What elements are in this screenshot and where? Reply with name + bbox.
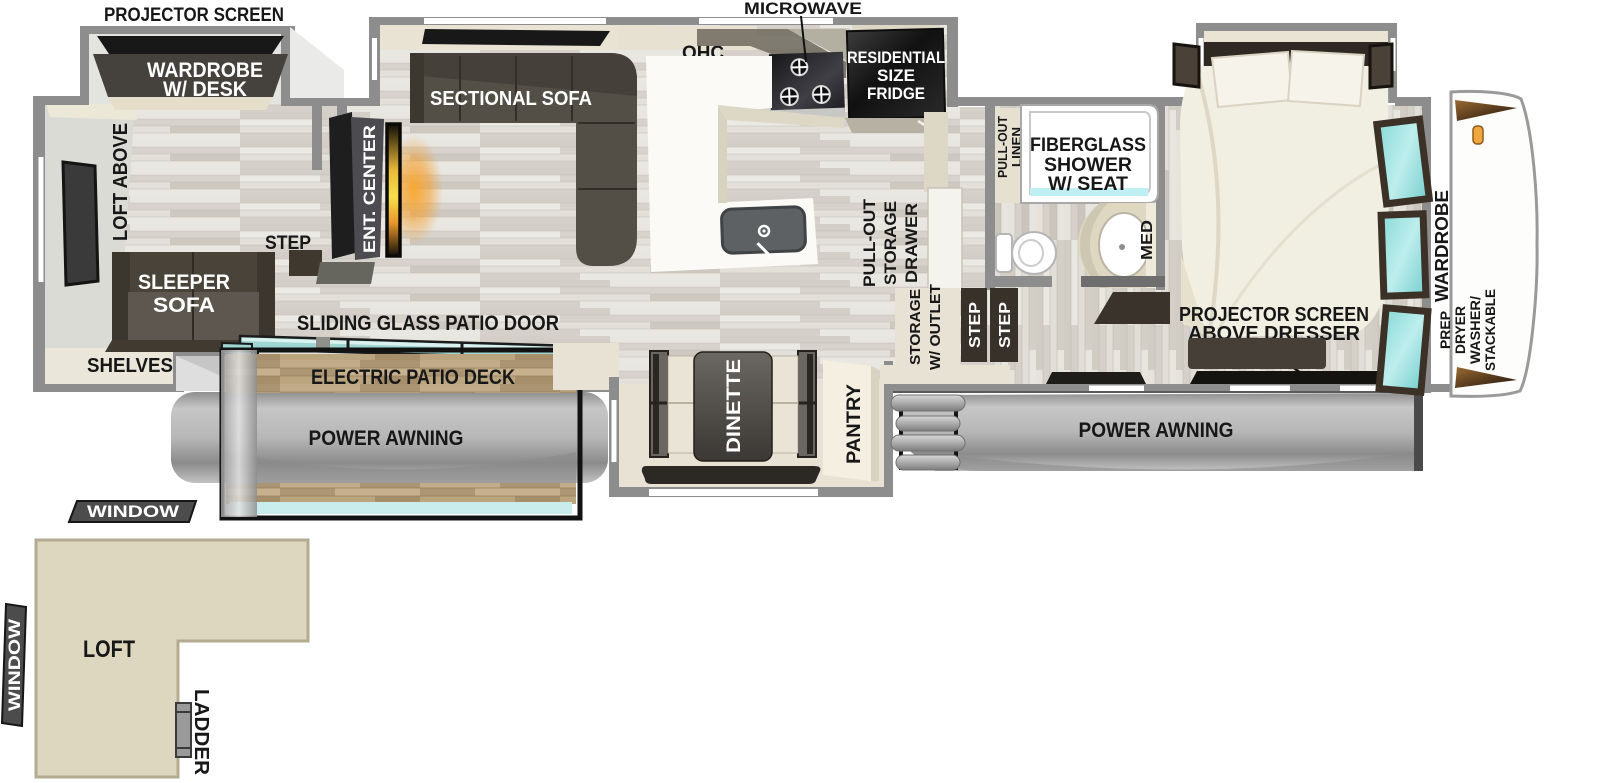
svg-text:ENT. CENTER: ENT. CENTER [360, 125, 379, 253]
svg-text:POWER AWNING: POWER AWNING [309, 427, 464, 450]
svg-text:SECTIONAL SOFA: SECTIONAL SOFA [430, 88, 592, 110]
svg-text:LADDER: LADDER [190, 689, 212, 776]
svg-text:SOFA: SOFA [153, 294, 215, 317]
svg-text:PULL-OUT: PULL-OUT [995, 116, 1010, 178]
svg-text:STORAGE: STORAGE [907, 289, 924, 365]
svg-text:FIBERGLASS: FIBERGLASS [1030, 135, 1146, 156]
svg-text:MED: MED [1139, 220, 1156, 260]
svg-text:W/ SEAT: W/ SEAT [1048, 174, 1128, 195]
svg-text:POWER AWNING: POWER AWNING [1079, 419, 1234, 442]
svg-text:SHELVES: SHELVES [87, 355, 173, 377]
svg-text:SLIDING GLASS PATIO DOOR: SLIDING GLASS PATIO DOOR [297, 312, 559, 335]
svg-text:PREP: PREP [1438, 311, 1453, 349]
svg-text:FRIDGE: FRIDGE [867, 85, 925, 103]
svg-text:PANTRY: PANTRY [844, 384, 865, 464]
svg-text:MICROWAVE: MICROWAVE [744, 0, 862, 18]
svg-text:LOFT: LOFT [83, 636, 135, 663]
svg-text:WARDROBE: WARDROBE [1432, 190, 1452, 302]
svg-text:SIZE: SIZE [877, 67, 915, 85]
svg-text:PROJECTOR SCREEN: PROJECTOR SCREEN [104, 5, 284, 26]
svg-text:WINDOW: WINDOW [5, 618, 24, 711]
svg-text:SLEEPER: SLEEPER [138, 271, 230, 294]
svg-text:STEP: STEP [997, 302, 1014, 348]
svg-text:W/ OUTLET: W/ OUTLET [927, 284, 944, 370]
svg-text:W/ DESK: W/ DESK [163, 78, 247, 101]
svg-text:RESIDENTIAL: RESIDENTIAL [847, 49, 945, 67]
svg-text:STEP: STEP [967, 302, 984, 348]
svg-text:LOFT ABOVE: LOFT ABOVE [110, 123, 132, 241]
svg-text:PULL-OUT: PULL-OUT [860, 198, 879, 287]
svg-text:WASHER/: WASHER/ [1468, 296, 1483, 364]
svg-text:STORAGE: STORAGE [881, 201, 900, 285]
svg-text:STEP: STEP [265, 233, 311, 254]
svg-text:DRAWER: DRAWER [902, 203, 921, 283]
svg-text:WINDOW: WINDOW [87, 502, 180, 521]
svg-text:DRYER: DRYER [1453, 306, 1468, 354]
svg-text:STACKABLE: STACKABLE [1483, 289, 1498, 371]
svg-text:DINETTE: DINETTE [724, 359, 745, 453]
svg-text:SHOWER: SHOWER [1044, 155, 1132, 176]
svg-text:ELECTRIC PATIO DECK: ELECTRIC PATIO DECK [311, 366, 515, 389]
